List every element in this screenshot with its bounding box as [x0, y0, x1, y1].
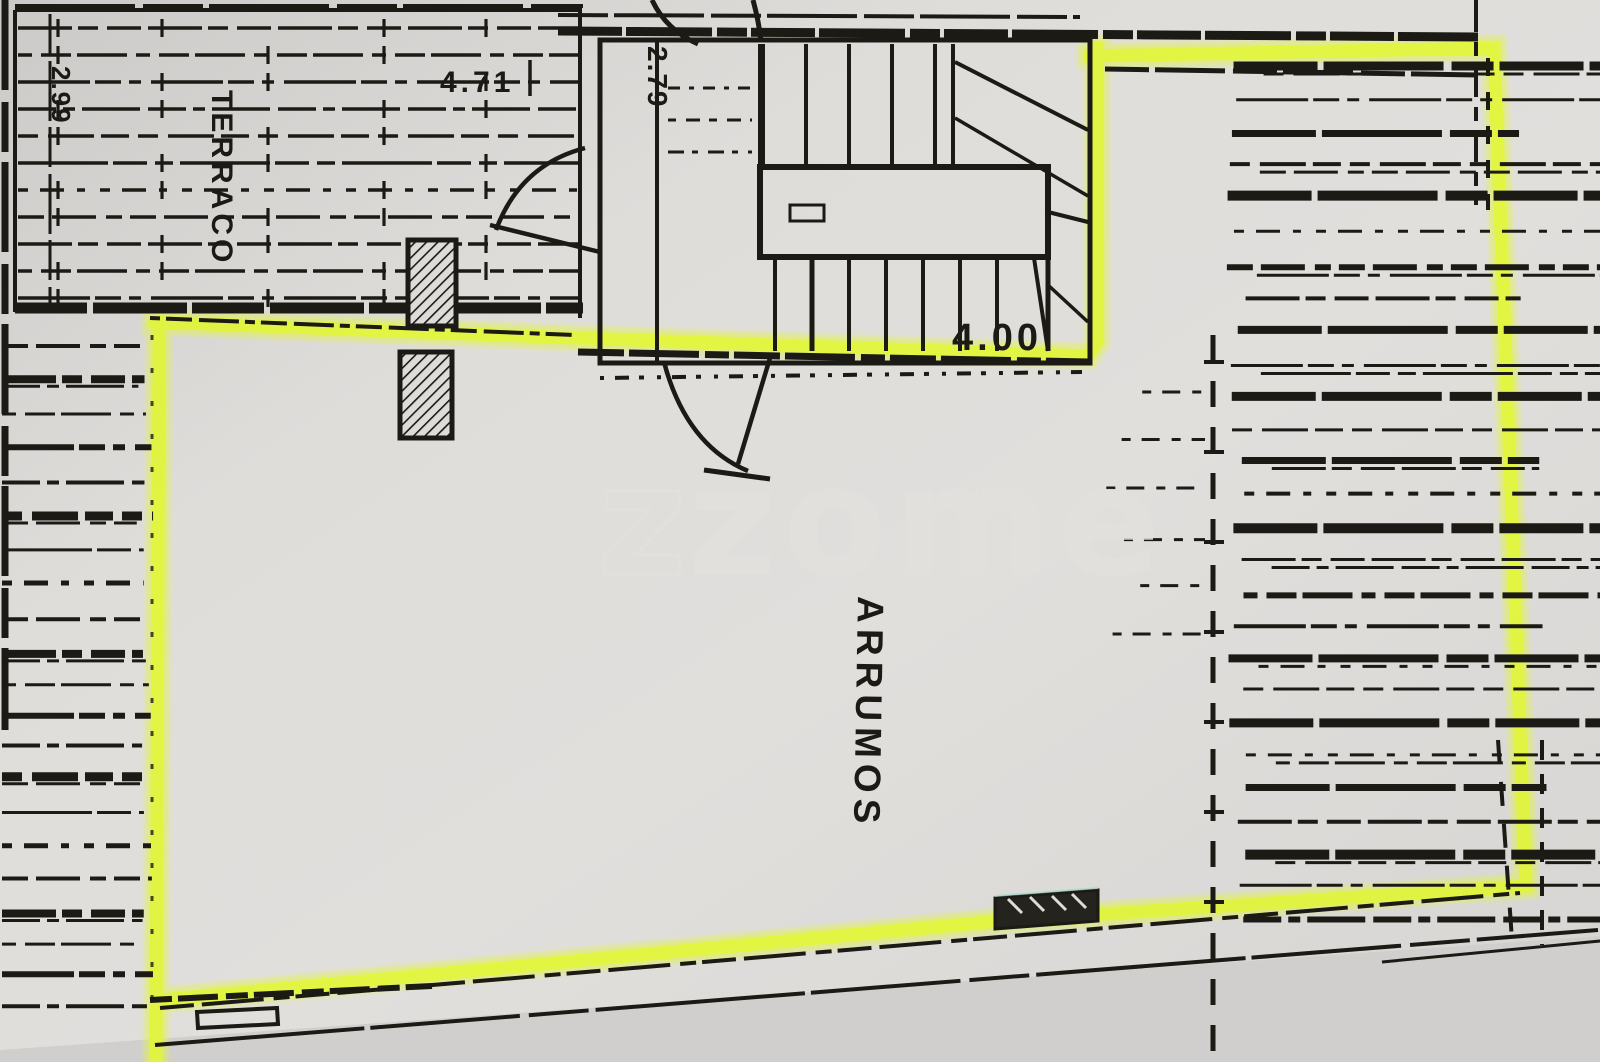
dimension-2-99: 2.99	[46, 66, 76, 125]
dimension-2-79: 2.79	[642, 46, 673, 109]
terrace-label: TERRACO	[205, 90, 238, 266]
floor-plan-svg: TERRACO 4.71 2.79 2.99 4.00 ARRUMOS z zo…	[0, 0, 1600, 1062]
dimension-4-71: 4.71	[440, 66, 514, 99]
floor-plan-scan: TERRACO 4.71 2.79 2.99 4.00 ARRUMOS z zo…	[0, 0, 1600, 1062]
bottom-hatched-block	[995, 888, 1098, 929]
watermark: z zome ®	[598, 433, 1166, 610]
dimension-4-00: 4.00	[952, 317, 1042, 359]
storage-room-label: ARRUMOS	[846, 596, 891, 830]
watermark-outline-z: z	[598, 433, 692, 610]
watermark-text: zome	[688, 433, 1166, 610]
watermark-registered-icon: ®	[972, 476, 1000, 509]
